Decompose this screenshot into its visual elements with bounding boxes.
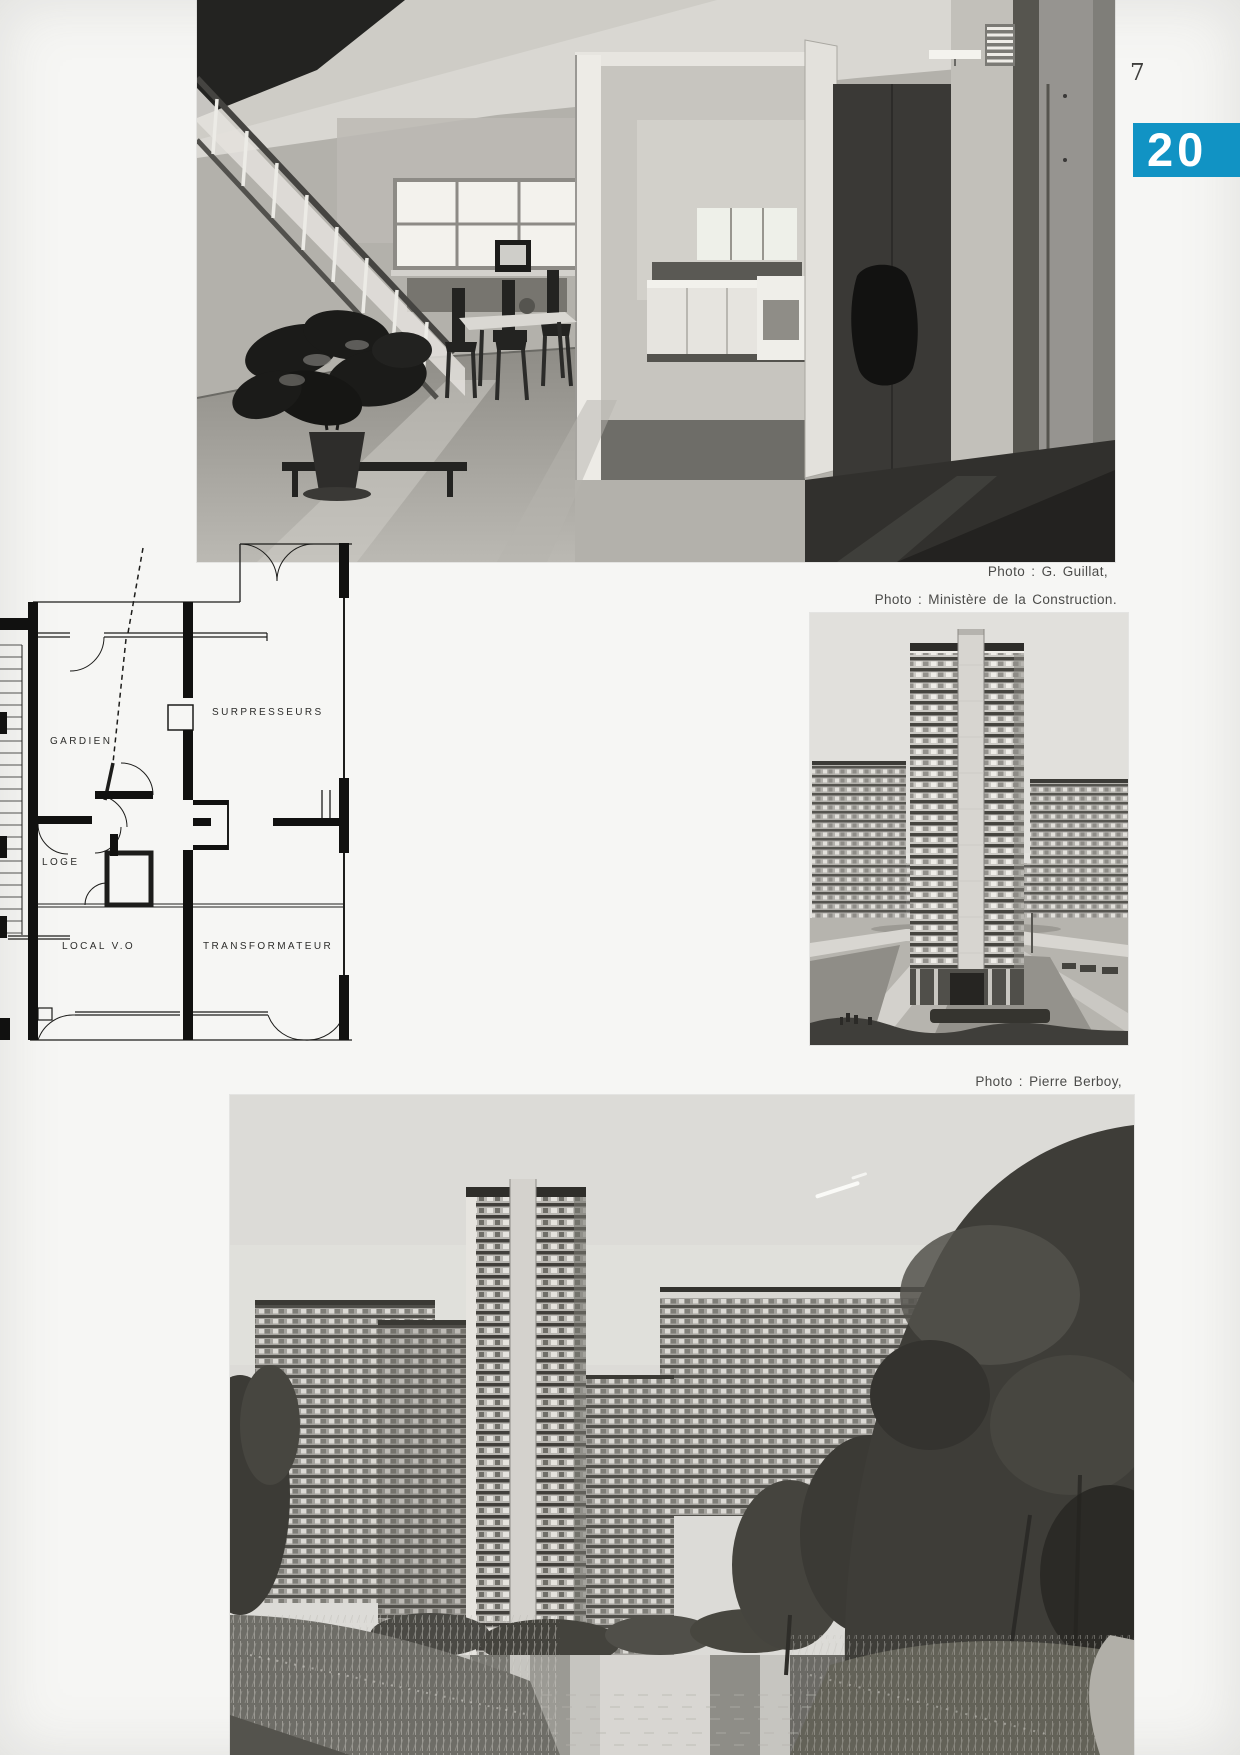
- floor-plan-drawing: [0, 538, 352, 1043]
- page-number: 7: [1130, 60, 1145, 86]
- photo-credit-berboy: Photo : Pierre Berboy,: [975, 1074, 1122, 1089]
- photo-canal-housing-estate: [230, 1095, 1134, 1755]
- tower-photo-art: [810, 613, 1128, 1045]
- issue-badge: 20: [1133, 123, 1240, 177]
- plan-label-surpresseurs: SURPRESSEURS: [212, 707, 324, 718]
- photo-credit-guillat: Photo : G. Guillat,: [988, 564, 1108, 579]
- photo-credit-ministere: Photo : Ministère de la Construction.: [875, 592, 1117, 607]
- plan-label-local-vo: LOCAL V.O: [62, 941, 135, 952]
- interior-photo-art: [197, 0, 1115, 562]
- plan-label-loge: LOGE: [42, 857, 79, 868]
- issue-badge-number: 20: [1133, 123, 1207, 177]
- plan-label-gardien: GARDIEN: [50, 736, 112, 747]
- plan-label-transformateur: TRANSFORMATEUR: [203, 941, 333, 952]
- photo-interior-dining-kitchen: [197, 0, 1115, 562]
- floor-plan: SURPRESSEURS GARDIEN LOGE LOCAL V.O TRAN…: [0, 538, 352, 1043]
- photo-tower-block: [810, 613, 1128, 1045]
- magazine-page: 7 20 Photo : G. Guillat, Photo : Ministè…: [0, 0, 1240, 1755]
- vent-grille-icon: [985, 24, 1015, 66]
- canal-photo-art: [230, 1095, 1134, 1755]
